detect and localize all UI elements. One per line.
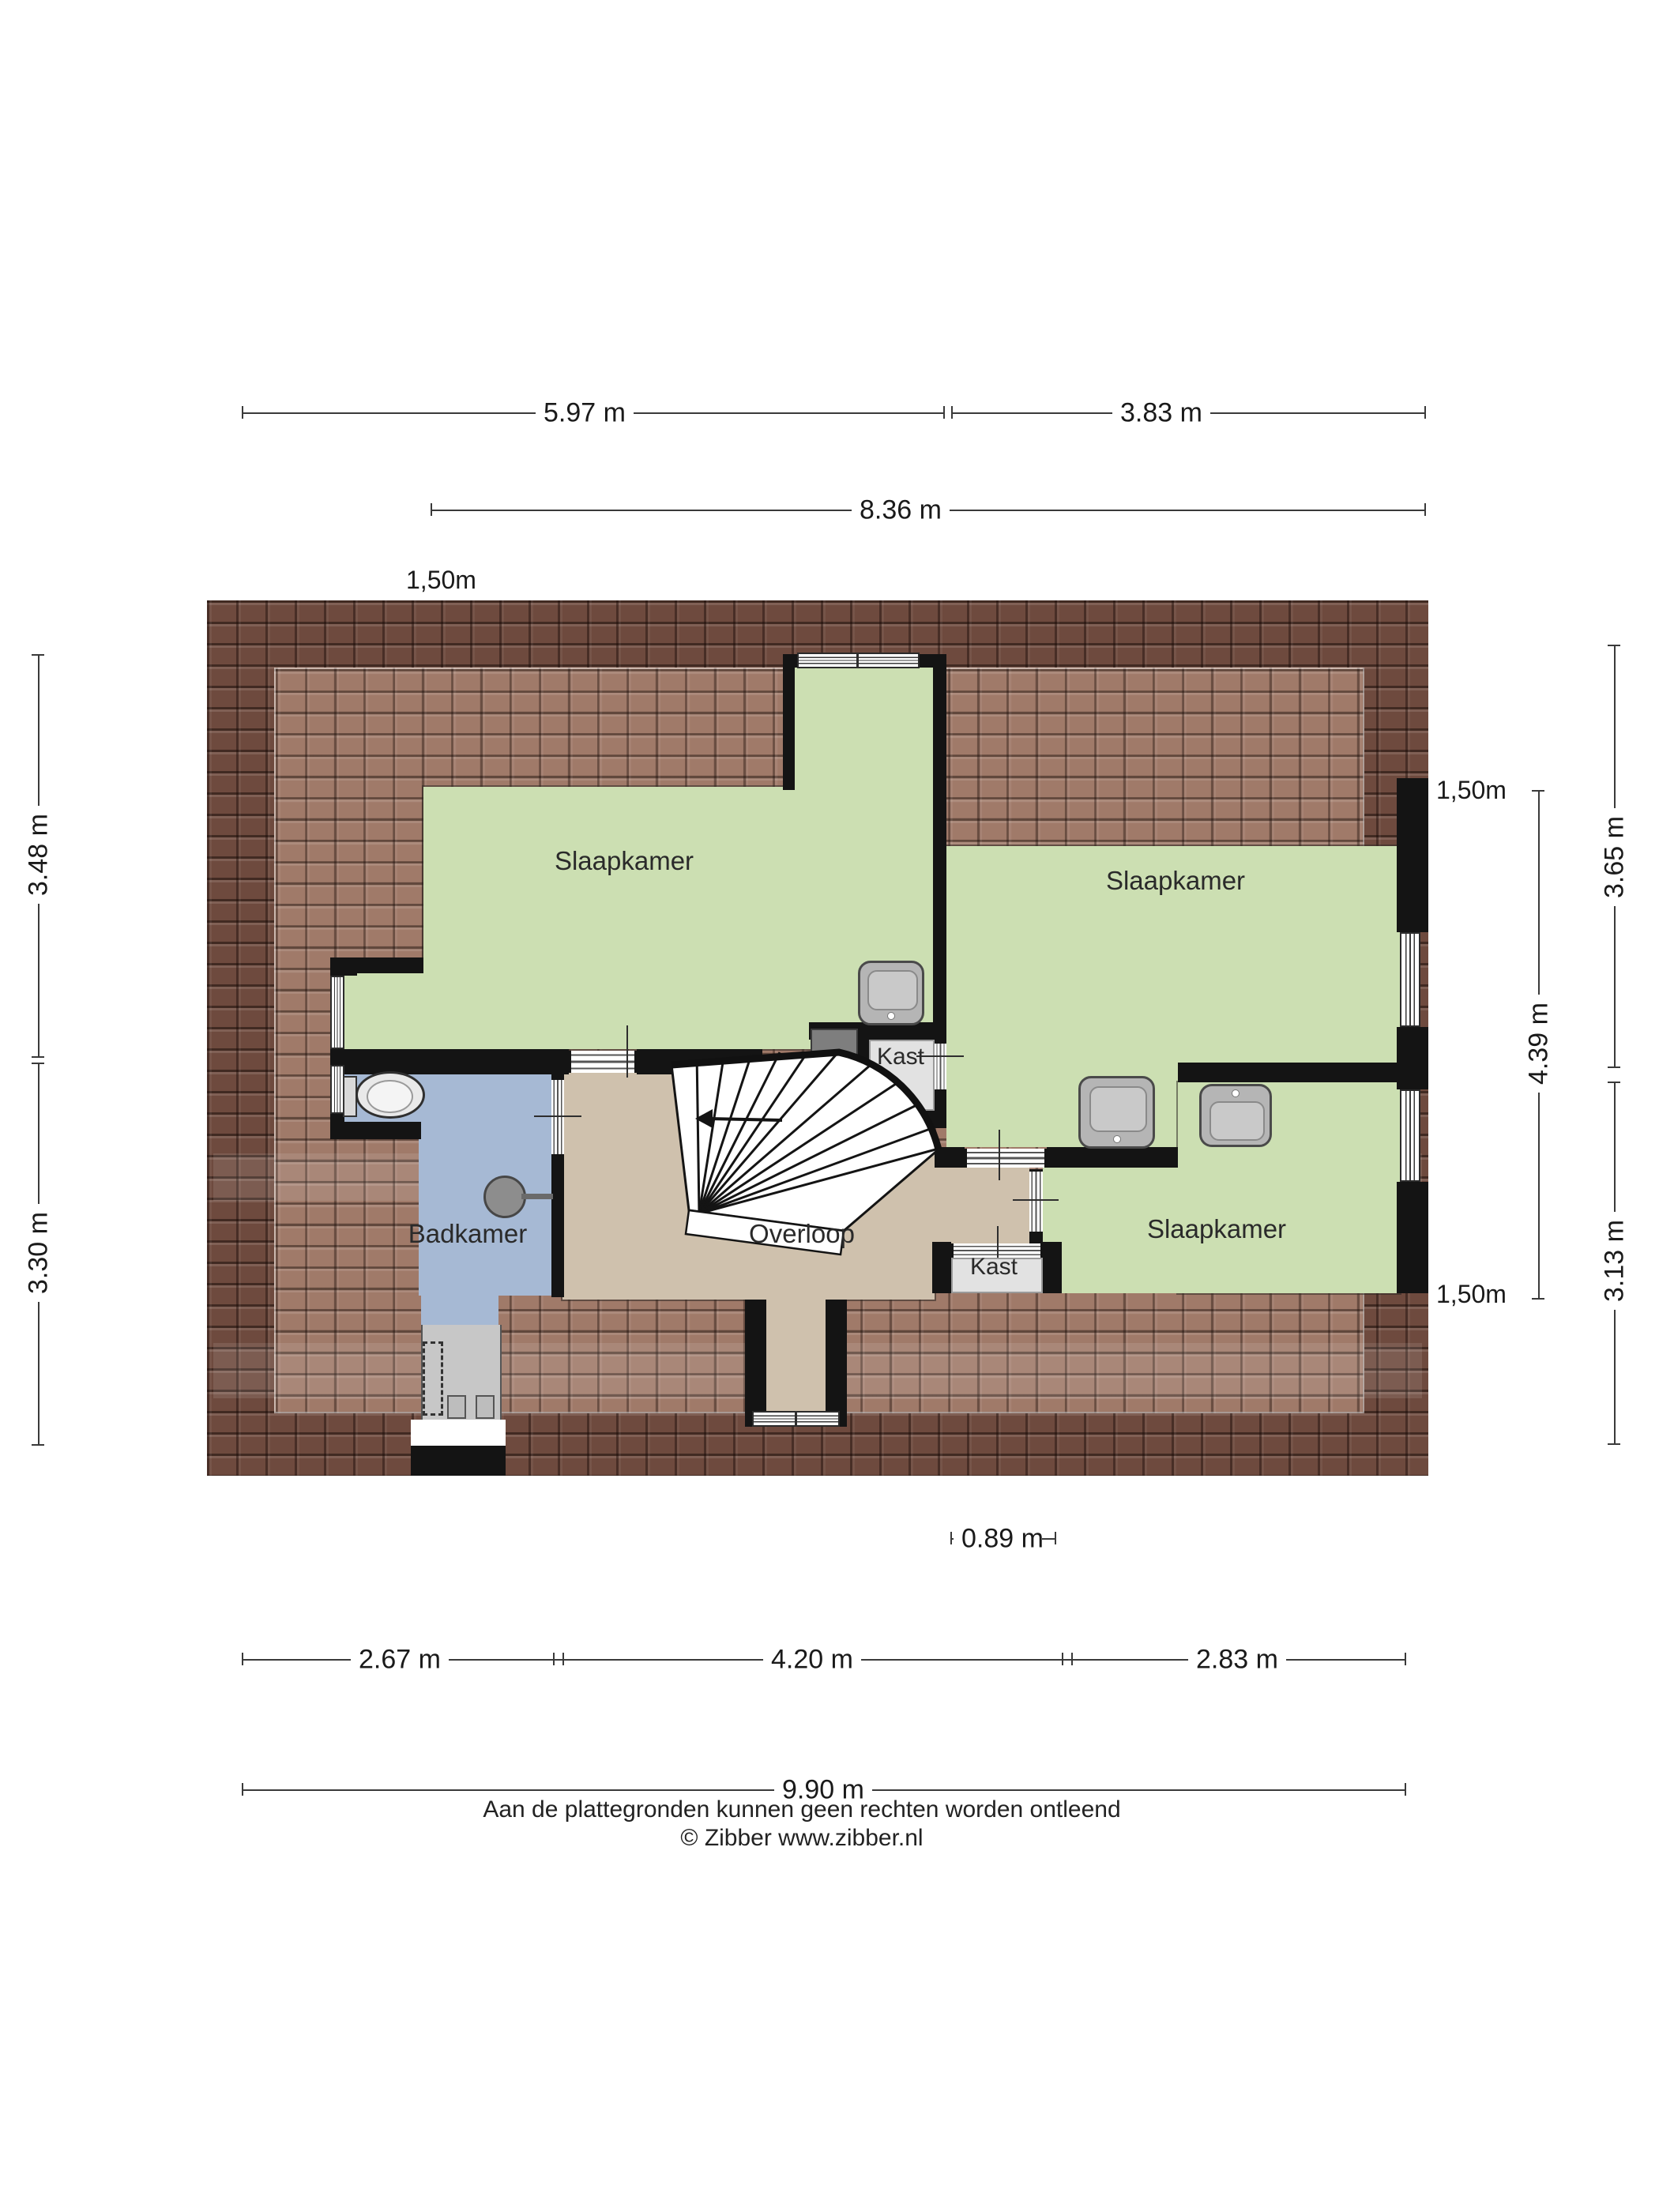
bedroom-bottom-door [1029, 1169, 1043, 1234]
dim-left-lower: 3.30 m [24, 1204, 55, 1302]
corridor-west-wall [745, 1300, 766, 1427]
dim-stub [1042, 1538, 1055, 1540]
east-wall-top [1397, 778, 1428, 932]
shower-tap-icon [447, 1395, 466, 1419]
east-wall-mid [1397, 1027, 1428, 1089]
dim-bottom-left: 2.67 m [351, 1645, 449, 1676]
bathroom-southwest-wall [330, 1122, 421, 1139]
bedroom-left-west-window [330, 976, 344, 1049]
bathroom-label: Badkamer [408, 1219, 527, 1249]
dim-tick [1608, 1082, 1620, 1083]
floorplan-page: Slaapkamer Slaapkamer Slaapkamer Badkame… [0, 0, 1659, 2212]
dim-tick [1424, 406, 1426, 419]
dim-right-upper: 3.65 m [1600, 808, 1631, 906]
bedroom-right-label: Slaapkamer [1106, 866, 1245, 896]
door-tick [1013, 1199, 1059, 1201]
dim-tick [431, 503, 432, 516]
dim-tick [242, 1783, 243, 1796]
bathroom-east-wall-bottom [551, 1157, 564, 1297]
bathroom-floor-dormer [421, 1296, 498, 1325]
bedroom-right-south-wall-b [1047, 1147, 1178, 1168]
door-tick [999, 1130, 1000, 1180]
bedroom-bottom-label: Slaapkamer [1147, 1214, 1286, 1244]
dim-left-upper: 3.48 m [24, 806, 55, 904]
shower-arm [521, 1194, 553, 1199]
bedroom-left-label: Slaapkamer [555, 846, 694, 876]
west-jut-wall-corner [330, 957, 357, 976]
dim-tick [562, 1653, 564, 1665]
corridor-window-mullion [795, 1411, 797, 1427]
bathroom-floor-lower [419, 1122, 551, 1296]
landing-corridor-floor [766, 1300, 826, 1414]
attic-line-label-top-left: 1,50m [406, 566, 476, 595]
door-tick [626, 1025, 628, 1078]
dim-tick [951, 406, 953, 419]
dim-tick [1062, 1653, 1063, 1665]
closet-bottom-east-wall [1043, 1242, 1062, 1293]
bedroom-left-floor [423, 787, 933, 1049]
attic-line-label-bottom-right: 1,50m [1436, 1280, 1507, 1309]
shower-dormer-sill [411, 1420, 506, 1446]
shower-icon [483, 1176, 526, 1218]
shower-dormer-wall [411, 1446, 506, 1476]
dim-tick [1424, 503, 1426, 516]
dim-tick [943, 406, 945, 419]
dim-top-left: 5.97 m [536, 398, 634, 429]
dim-tick [242, 406, 243, 419]
dim-tick [1405, 1783, 1406, 1796]
sink-icon [1199, 1084, 1272, 1147]
dim-tick [553, 1653, 555, 1665]
sink-icon [1078, 1076, 1155, 1149]
dim-tick [242, 1653, 243, 1665]
bedroom-left-west-floor [342, 973, 431, 1049]
closet-bottom-label: Kast [970, 1254, 1018, 1281]
dim-right-lower: 3.13 m [1600, 1212, 1631, 1310]
dim-tick [1532, 1298, 1544, 1300]
dim-tick [32, 654, 44, 656]
dim-tick [1532, 790, 1544, 792]
toilet-icon [355, 1071, 425, 1119]
attic-line-label-top-right: 1,50m [1436, 776, 1507, 805]
bedroom-bottom-north-wall [1178, 1063, 1400, 1082]
sink-icon [858, 961, 924, 1025]
bedroom-right-door [965, 1149, 1047, 1168]
dim-right-inner: 4.39 m [1524, 995, 1555, 1093]
dormer-window-mullion [856, 653, 859, 668]
corridor-east-wall [826, 1300, 847, 1427]
dim-tick [1071, 1653, 1073, 1665]
footer-disclaimer: Aan de plattegronden kunnen geen rechten… [0, 1796, 1604, 1823]
dim-tick [32, 1056, 44, 1058]
dim-window-width: 0.89 m [954, 1524, 1051, 1555]
bathroom-east-wall-top [551, 1049, 564, 1078]
landing-label: Overloop [749, 1219, 855, 1249]
dim-bottom-right: 2.83 m [1188, 1645, 1286, 1676]
bedroom-bottom-east-window [1400, 1089, 1420, 1182]
dim-tick [1608, 1443, 1620, 1445]
shower-drain [423, 1341, 443, 1416]
shower-tap-icon [476, 1395, 495, 1419]
east-wall-bottom [1397, 1182, 1428, 1293]
dormer-east-wall [933, 654, 946, 1049]
dim-top-total: 8.36 m [852, 495, 950, 526]
dim-top-right: 3.83 m [1112, 398, 1210, 429]
bedroom-left-dormer-floor [793, 668, 933, 794]
dim-tick [32, 1063, 44, 1064]
dim-bottom-mid: 4.20 m [763, 1645, 861, 1676]
footer-copyright: © Zibber www.zibber.nl [0, 1825, 1604, 1852]
bedroom-left-south-wall [330, 1049, 569, 1074]
dim-tick [1055, 1532, 1056, 1544]
dormer-west-wall [783, 654, 795, 790]
door-tick [534, 1115, 581, 1117]
bathroom-door [551, 1078, 564, 1157]
dim-tick [1608, 645, 1620, 646]
bedroom-right-east-window [1400, 932, 1420, 1027]
closet-top-label: Kast [877, 1044, 924, 1070]
dim-tick [1608, 1066, 1620, 1068]
dim-tick [32, 1444, 44, 1446]
dim-tick [1405, 1653, 1406, 1665]
west-jut-wall [355, 957, 423, 973]
